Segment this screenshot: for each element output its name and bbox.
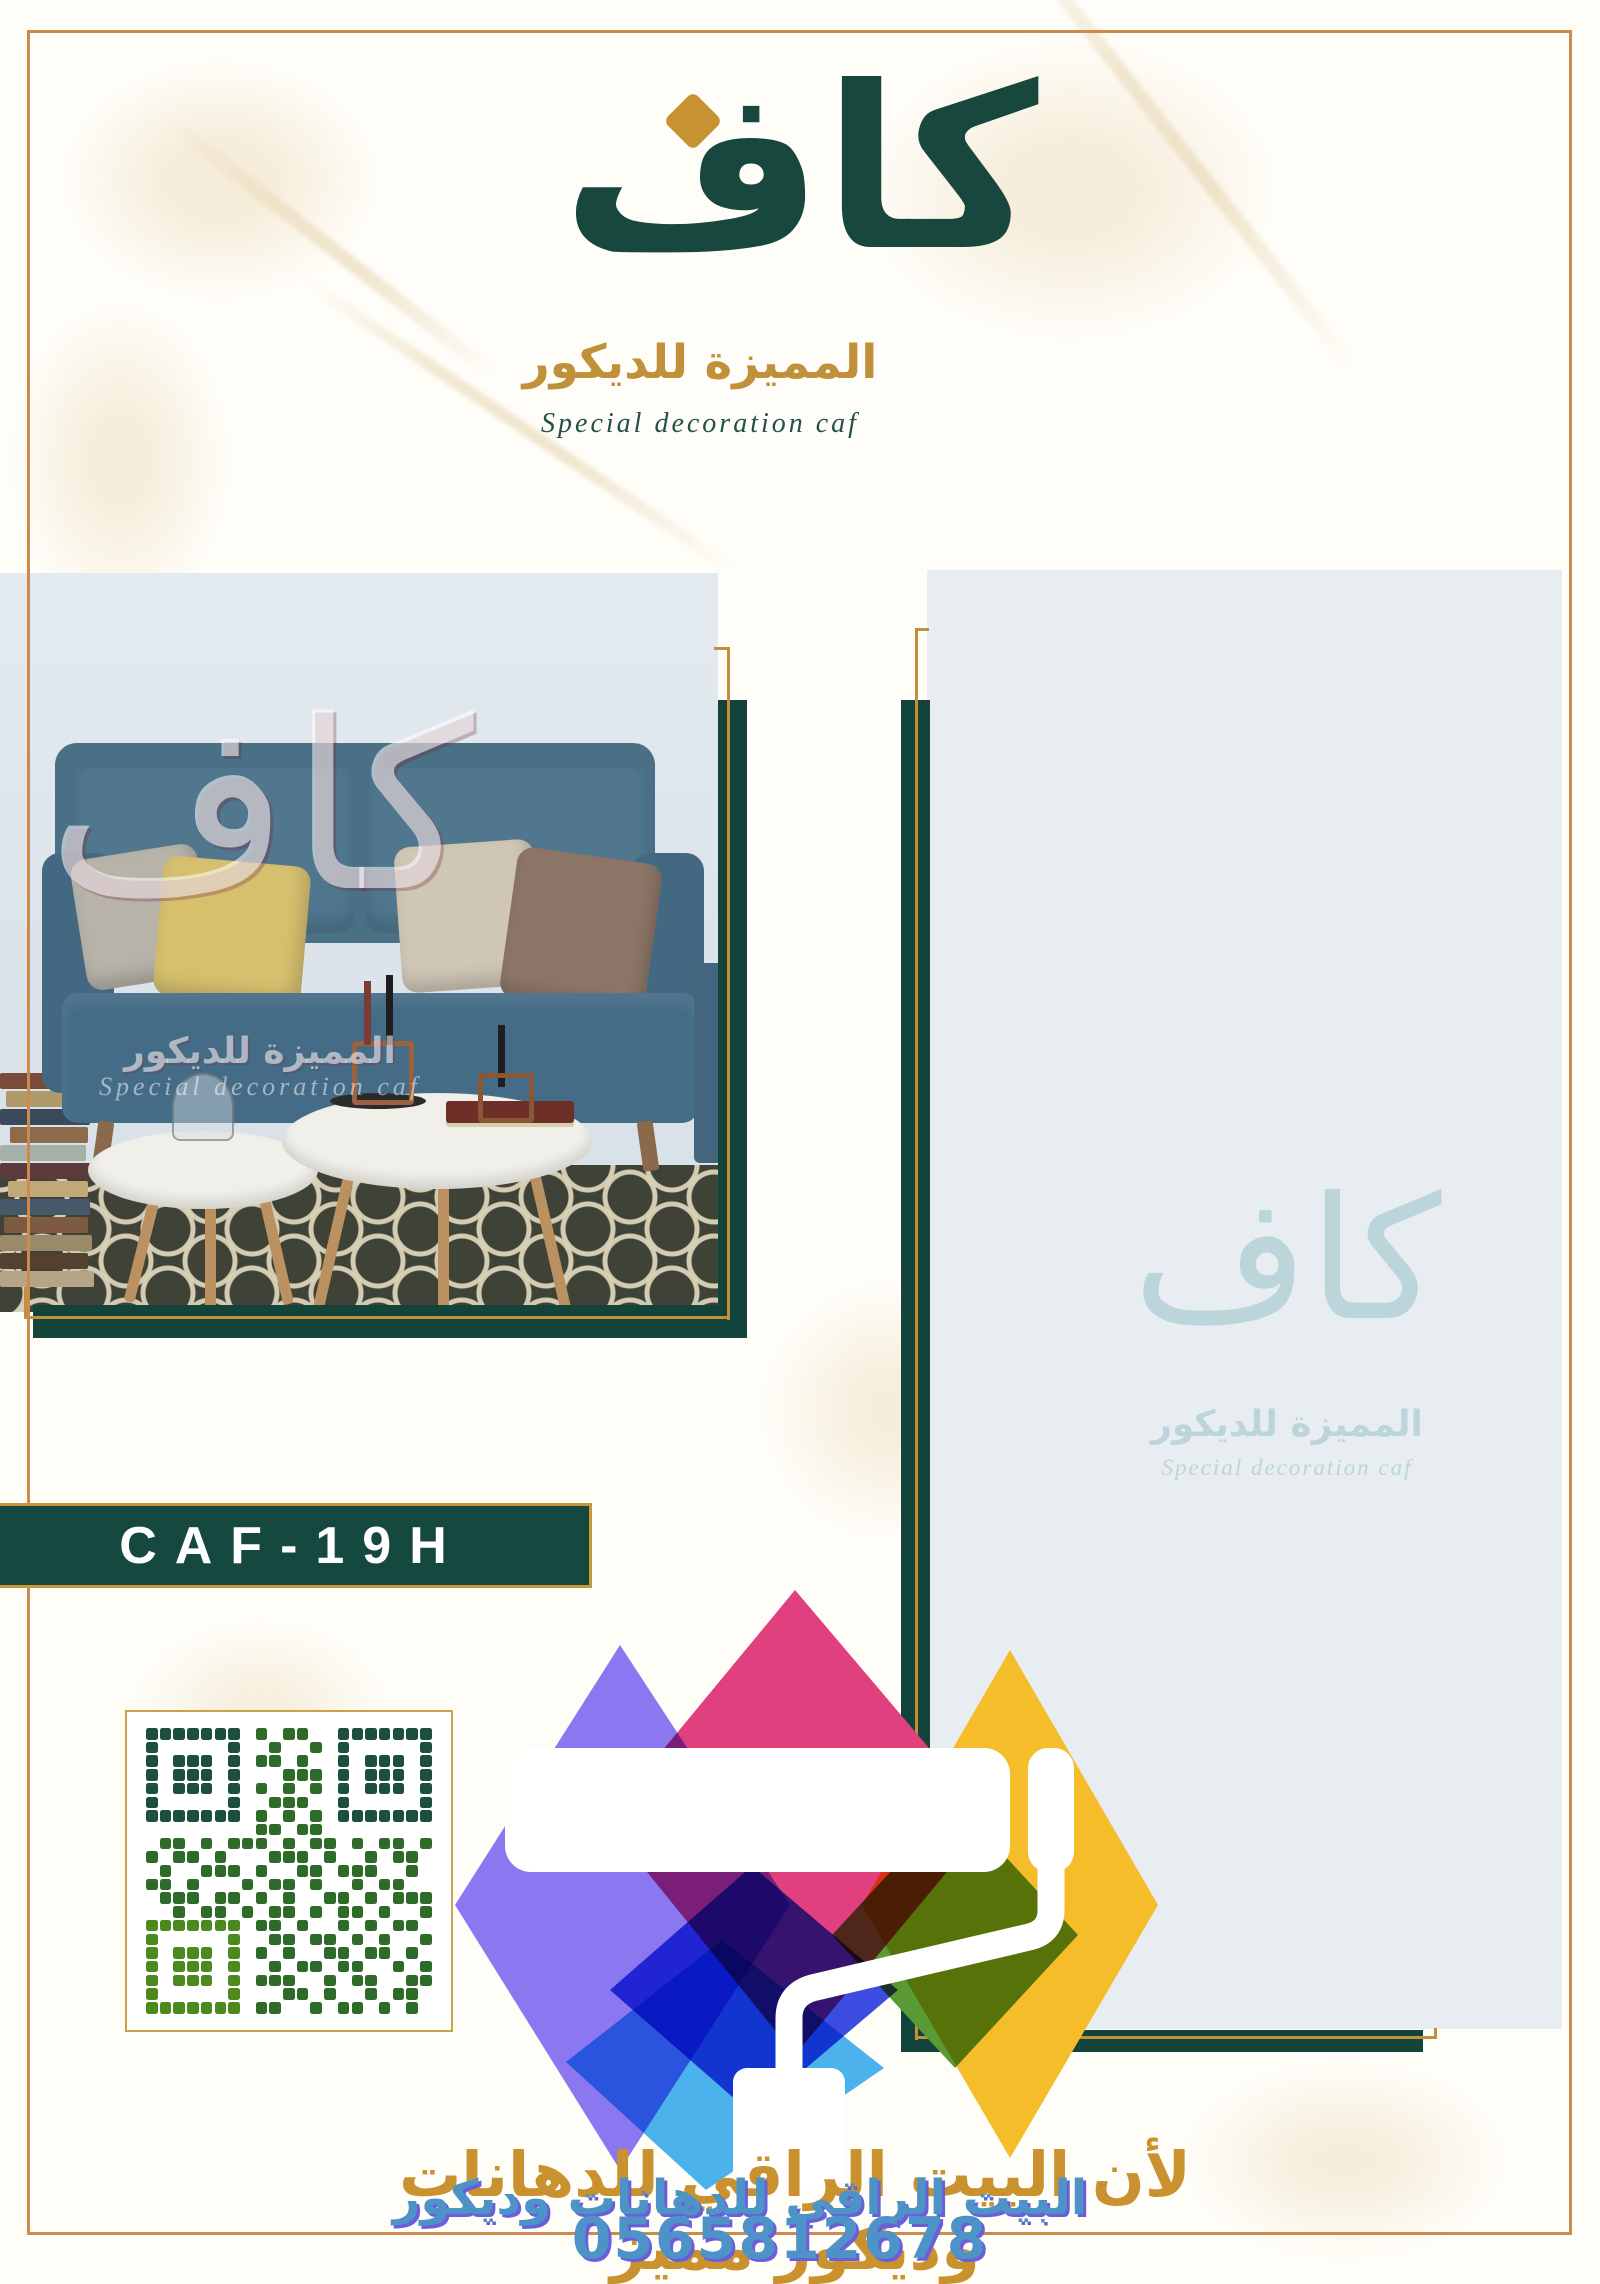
- qr-module: [393, 1755, 405, 1767]
- qr-module: [228, 1742, 240, 1754]
- qr-module: [297, 1920, 309, 1932]
- qr-module: [406, 1810, 418, 1822]
- qr-module: [215, 1865, 227, 1877]
- qr-module: [187, 1961, 199, 1973]
- qr-module: [201, 1755, 213, 1767]
- qr-module: [187, 1879, 199, 1891]
- qr-module: [173, 1851, 185, 1863]
- watermark-kaf: كاف: [1107, 1130, 1467, 1390]
- qr-module: [310, 2002, 322, 2014]
- qr-module: [228, 1988, 240, 2000]
- qr-module: [215, 1810, 227, 1822]
- qr-module: [379, 1879, 391, 1891]
- qr-module: [146, 2002, 158, 2014]
- qr-module: [338, 1755, 350, 1767]
- qr-module: [338, 1947, 350, 1959]
- qr-module: [379, 1755, 391, 1767]
- qr-module: [310, 1810, 322, 1822]
- qr-module: [187, 1769, 199, 1781]
- qr-module: [393, 1769, 405, 1781]
- qr-module: [310, 1838, 322, 1850]
- qr-module: [338, 1742, 350, 1754]
- sofa-photo: كاف المميزة للديكور Special decoration c…: [0, 573, 718, 1312]
- qr-module: [173, 1961, 185, 1973]
- qr-module: [393, 1851, 405, 1863]
- qr-module: [297, 1961, 309, 1973]
- qr-module: [215, 1851, 227, 1863]
- panel-gold-line-vertical: [915, 628, 918, 2040]
- qr-module: [406, 1920, 418, 1932]
- qr-module: [146, 1728, 158, 1740]
- qr-module: [173, 1920, 185, 1932]
- qr-module: [365, 1769, 377, 1781]
- qr-module: [242, 1906, 254, 1918]
- qr-module: [420, 1755, 432, 1767]
- pillow-brown: [498, 846, 664, 1017]
- qr-module: [228, 1728, 240, 1740]
- qr-module: [173, 1783, 185, 1795]
- qr-module: [420, 1797, 432, 1809]
- blue-diamond: [610, 1866, 898, 2114]
- qr-module: [146, 1755, 158, 1767]
- qr-module: [146, 1797, 158, 1809]
- qr-module: [338, 1906, 350, 1918]
- qr-module: [297, 1851, 309, 1863]
- qr-module: [256, 1810, 268, 1822]
- qr-module: [420, 1810, 432, 1822]
- qr-module: [365, 1947, 377, 1959]
- qr-module: [379, 1906, 391, 1918]
- qr-module: [283, 1769, 295, 1781]
- qr-module: [310, 1879, 322, 1891]
- right-panel: كاف المميزة للديكور Special decoration c…: [927, 570, 1562, 2029]
- qr-module: [228, 1797, 240, 1809]
- qr-module: [283, 1975, 295, 1987]
- qr-module: [160, 1810, 172, 1822]
- qr-module: [187, 1783, 199, 1795]
- qr-module: [146, 1920, 158, 1932]
- qr-module: [187, 1755, 199, 1767]
- qr-module: [187, 1728, 199, 1740]
- qr-module: [160, 2002, 172, 2014]
- qr-module: [215, 1906, 227, 1918]
- qr-module: [256, 2002, 268, 2014]
- watermark-english: Special decoration caf: [1107, 1455, 1467, 1481]
- marble-blob: [10, 300, 230, 620]
- qr-module: [297, 1797, 309, 1809]
- qr-module: [146, 1961, 158, 1973]
- qr-module: [365, 1892, 377, 1904]
- qr-module: [146, 1934, 158, 1946]
- qr-module: [352, 1865, 364, 1877]
- qr-module: [269, 2002, 281, 2014]
- qr-module: [420, 1892, 432, 1904]
- qr-module: [324, 1934, 336, 1946]
- brand-kaf-calligraphy: كاف: [450, 0, 1150, 360]
- brand-english-name: Special decoration caf: [400, 408, 1000, 440]
- qr-module: [201, 1783, 213, 1795]
- qr-module: [269, 1961, 281, 1973]
- qr-module: [406, 1851, 418, 1863]
- panel-gold-line-end-hook: [1434, 2028, 1437, 2039]
- qr-module: [201, 1865, 213, 1877]
- qr-module: [173, 1728, 185, 1740]
- qr-module: [393, 1728, 405, 1740]
- qr-module: [283, 1879, 295, 1891]
- qr-module: [338, 1810, 350, 1822]
- qr-module: [215, 2002, 227, 2014]
- qr-module: [365, 1783, 377, 1795]
- qr-module: [201, 2002, 213, 2014]
- qr-module: [201, 1947, 213, 1959]
- qr-module: [256, 1892, 268, 1904]
- qr-module: [146, 1810, 158, 1822]
- qr-module: [201, 1961, 213, 1973]
- qr-module: [365, 1988, 377, 2000]
- qr-module: [310, 1769, 322, 1781]
- qr-module: [160, 1920, 172, 1932]
- product-code-box: CAF-19H: [0, 1503, 592, 1588]
- qr-module: [379, 1783, 391, 1795]
- photo-frame-bottom-bar: [33, 1305, 747, 1338]
- qr-module: [310, 1742, 322, 1754]
- qr-module: [269, 1920, 281, 1932]
- qr-module: [228, 1934, 240, 1946]
- qr-module: [201, 1769, 213, 1781]
- qr-module: [256, 1975, 268, 1987]
- qr-module: [420, 1769, 432, 1781]
- panel-gold-line-bottom: [917, 2036, 1437, 2039]
- product-code-label: CAF-19H: [119, 1516, 465, 1576]
- qr-module: [406, 1728, 418, 1740]
- qr-module: [160, 1879, 172, 1891]
- qr-module: [393, 1892, 405, 1904]
- qr-module: [324, 1947, 336, 1959]
- panel-gold-line-top-hook: [915, 628, 929, 631]
- qr-module: [310, 1865, 322, 1877]
- qr-module: [242, 1838, 254, 1850]
- qr-module: [187, 1810, 199, 1822]
- qr-module: [160, 1892, 172, 1904]
- qr-module: [379, 1810, 391, 1822]
- watermark-arabic: المميزة للديكور: [10, 1031, 510, 1072]
- qr-module: [173, 1838, 185, 1850]
- qr-module: [352, 1961, 364, 1973]
- qr-module: [269, 1975, 281, 1987]
- qr-module: [269, 1797, 281, 1809]
- qr-module: [352, 1838, 364, 1850]
- qr-module: [338, 1892, 350, 1904]
- qr-module: [228, 1865, 240, 1877]
- qr-module: [173, 1810, 185, 1822]
- qr-module: [146, 1769, 158, 1781]
- qr-module: [269, 1742, 281, 1754]
- qr-module: [365, 1810, 377, 1822]
- photo-frame-right-bar: [718, 700, 747, 1338]
- qr-module: [146, 1947, 158, 1959]
- table-leg: [438, 1175, 449, 1312]
- qr-module: [283, 1838, 295, 1850]
- qr-module: [338, 1961, 350, 1973]
- qr-module: [187, 1975, 199, 1987]
- qr-module: [310, 1961, 322, 1973]
- qr-module: [228, 1755, 240, 1767]
- qr-module: [338, 1797, 350, 1809]
- qr-module: [269, 1906, 281, 1918]
- qr-module: [283, 1783, 295, 1795]
- qr-module: [173, 1892, 185, 1904]
- qr-module: [393, 1838, 405, 1850]
- qr-module: [228, 1961, 240, 1973]
- qr-module: [256, 1865, 268, 1877]
- qr-module: [146, 1742, 158, 1754]
- qr-module: [173, 1947, 185, 1959]
- photo-armchair-edge: [694, 963, 718, 1163]
- qr-module: [228, 1810, 240, 1822]
- qr-module: [146, 1988, 158, 2000]
- qr-module: [160, 1728, 172, 1740]
- qr-module: [310, 1783, 322, 1795]
- qr-module: [365, 1755, 377, 1767]
- qr-module: [146, 1783, 158, 1795]
- qr-module: [201, 1975, 213, 1987]
- qr-module: [146, 1975, 158, 1987]
- qr-module: [228, 1947, 240, 1959]
- qr-code[interactable]: [125, 1710, 453, 2032]
- qr-module: [310, 1906, 322, 1918]
- qr-module: [352, 1810, 364, 1822]
- qr-module: [256, 1783, 268, 1795]
- qr-module: [201, 1920, 213, 1932]
- qr-module: [228, 1769, 240, 1781]
- qr-module: [215, 1920, 227, 1932]
- qr-module: [406, 1988, 418, 2000]
- watermark-arabic: المميزة للديكور: [1107, 1404, 1467, 1445]
- qr-module: [160, 1865, 172, 1877]
- qr-module: [324, 1838, 336, 1850]
- qr-module: [406, 1892, 418, 1904]
- qr-module: [379, 1728, 391, 1740]
- qr-module: [365, 1975, 377, 1987]
- qr-module: [256, 1838, 268, 1850]
- brand-arabic-name: المميزة للديكور: [400, 335, 1000, 390]
- qr-module: [256, 1755, 268, 1767]
- qr-module: [310, 1934, 322, 1946]
- qr-module: [297, 1865, 309, 1877]
- qr-module: [324, 1851, 336, 1863]
- qr-module: [365, 1920, 377, 1932]
- qr-module: [338, 1769, 350, 1781]
- qr-module: [324, 1975, 336, 1987]
- qr-module: [269, 1934, 281, 1946]
- qr-module: [228, 2002, 240, 2014]
- qr-module: [215, 1892, 227, 1904]
- qr-module: [283, 1947, 295, 1959]
- qr-module: [365, 1851, 377, 1863]
- qr-module: [393, 1988, 405, 2000]
- panel-frame-bottom-bar: [901, 2030, 1423, 2052]
- qr-module: [352, 1879, 364, 1891]
- qr-module: [420, 1961, 432, 1973]
- panel-watermark: كاف المميزة للديكور Special decoration c…: [1107, 1130, 1467, 1481]
- qr-module: [338, 1865, 350, 1877]
- qr-module: [406, 1975, 418, 1987]
- qr-module: [187, 1920, 199, 1932]
- qr-module: [352, 1906, 364, 1918]
- qr-module: [269, 1851, 281, 1863]
- qr-module: [269, 1824, 281, 1836]
- qr-module: [256, 1920, 268, 1932]
- photo-gold-line-left-hook: [24, 1287, 27, 1319]
- qr-module: [338, 1920, 350, 1932]
- qr-module: [310, 1824, 322, 1836]
- qr-module: [146, 1879, 158, 1891]
- qr-module: [365, 1728, 377, 1740]
- qr-module: [187, 1892, 199, 1904]
- qr-module: [420, 1742, 432, 1754]
- qr-module: [352, 2002, 364, 2014]
- qr-module: [420, 1838, 432, 1850]
- brand-header: كاف المميزة للديكور Special decoration c…: [300, 40, 1100, 460]
- qr-module: [420, 1934, 432, 1946]
- qr-module: [379, 2002, 391, 2014]
- qr-module: [420, 1975, 432, 1987]
- qr-module: [228, 1920, 240, 1932]
- qr-module: [297, 1728, 309, 1740]
- qr-module: [228, 1975, 240, 1987]
- qr-module: [173, 1769, 185, 1781]
- qr-module: [256, 1947, 268, 1959]
- photo-gold-line-vertical: [727, 647, 730, 1320]
- qr-module: [420, 1783, 432, 1795]
- table-leg: [205, 1199, 216, 1312]
- qr-module: [406, 1865, 418, 1877]
- qr-module: [420, 1728, 432, 1740]
- qr-module: [201, 1838, 213, 1850]
- qr-module: [201, 1810, 213, 1822]
- qr-module: [283, 1988, 295, 2000]
- qr-module: [187, 2002, 199, 2014]
- qr-module: [297, 1824, 309, 1836]
- qr-module: [297, 1769, 309, 1781]
- qr-module: [420, 1906, 432, 1918]
- qr-module: [379, 1838, 391, 1850]
- qr-modules: [146, 1728, 434, 2016]
- qr-module: [352, 1975, 364, 1987]
- qr-module: [283, 1851, 295, 1863]
- qr-module: [379, 1947, 391, 1959]
- qr-module: [283, 1728, 295, 1740]
- qr-module: [393, 1961, 405, 1973]
- qr-module: [269, 1755, 281, 1767]
- qr-module: [393, 1920, 405, 1932]
- qr-module: [393, 1879, 405, 1891]
- qr-module: [338, 1783, 350, 1795]
- qr-module: [256, 1824, 268, 1836]
- qr-module: [393, 1810, 405, 1822]
- qr-module: [146, 1851, 158, 1863]
- qr-module: [160, 1838, 172, 1850]
- qr-module: [338, 1728, 350, 1740]
- qr-module: [173, 1906, 185, 1918]
- qr-module: [365, 1865, 377, 1877]
- qr-module: [324, 1892, 336, 1904]
- qr-module: [352, 1934, 364, 1946]
- qr-module: [283, 1906, 295, 1918]
- qr-module: [324, 1988, 336, 2000]
- qr-module: [406, 2002, 418, 2014]
- purple-diamond: [455, 1645, 790, 2170]
- qr-module: [283, 1810, 295, 1822]
- qr-module: [283, 1797, 295, 1809]
- qr-module: [242, 1879, 254, 1891]
- qr-module: [256, 1728, 268, 1740]
- qr-module: [338, 2002, 350, 2014]
- qr-module: [173, 2002, 185, 2014]
- qr-module: [201, 1728, 213, 1740]
- qr-module: [228, 1838, 240, 1850]
- qr-module: [393, 1783, 405, 1795]
- photo-watermark: كاف المميزة للديكور Special decoration c…: [10, 593, 510, 1102]
- watermark-kaf: كاف: [10, 593, 510, 1023]
- photo-gold-line-top-hook: [714, 647, 730, 650]
- qr-module: [215, 1728, 227, 1740]
- qr-module: [187, 1851, 199, 1863]
- qr-module: [187, 1947, 199, 1959]
- qr-module: [406, 1947, 418, 1959]
- qr-module: [201, 1906, 213, 1918]
- qr-module: [297, 1755, 309, 1767]
- qr-module: [173, 1975, 185, 1987]
- qr-module: [352, 1728, 364, 1740]
- qr-module: [297, 1988, 309, 2000]
- watermark-english: Special decoration caf: [10, 1072, 510, 1102]
- qr-module: [379, 1769, 391, 1781]
- qr-module: [228, 1783, 240, 1795]
- photo-gold-line-bottom: [24, 1316, 730, 1319]
- qr-module: [379, 1934, 391, 1946]
- qr-module: [269, 1879, 281, 1891]
- qr-module: [228, 1892, 240, 1904]
- qr-module: [173, 1755, 185, 1767]
- qr-module: [283, 1934, 295, 1946]
- qr-module: [283, 1892, 295, 1904]
- footer-phone-number[interactable]: 0565812678: [460, 2206, 1100, 2272]
